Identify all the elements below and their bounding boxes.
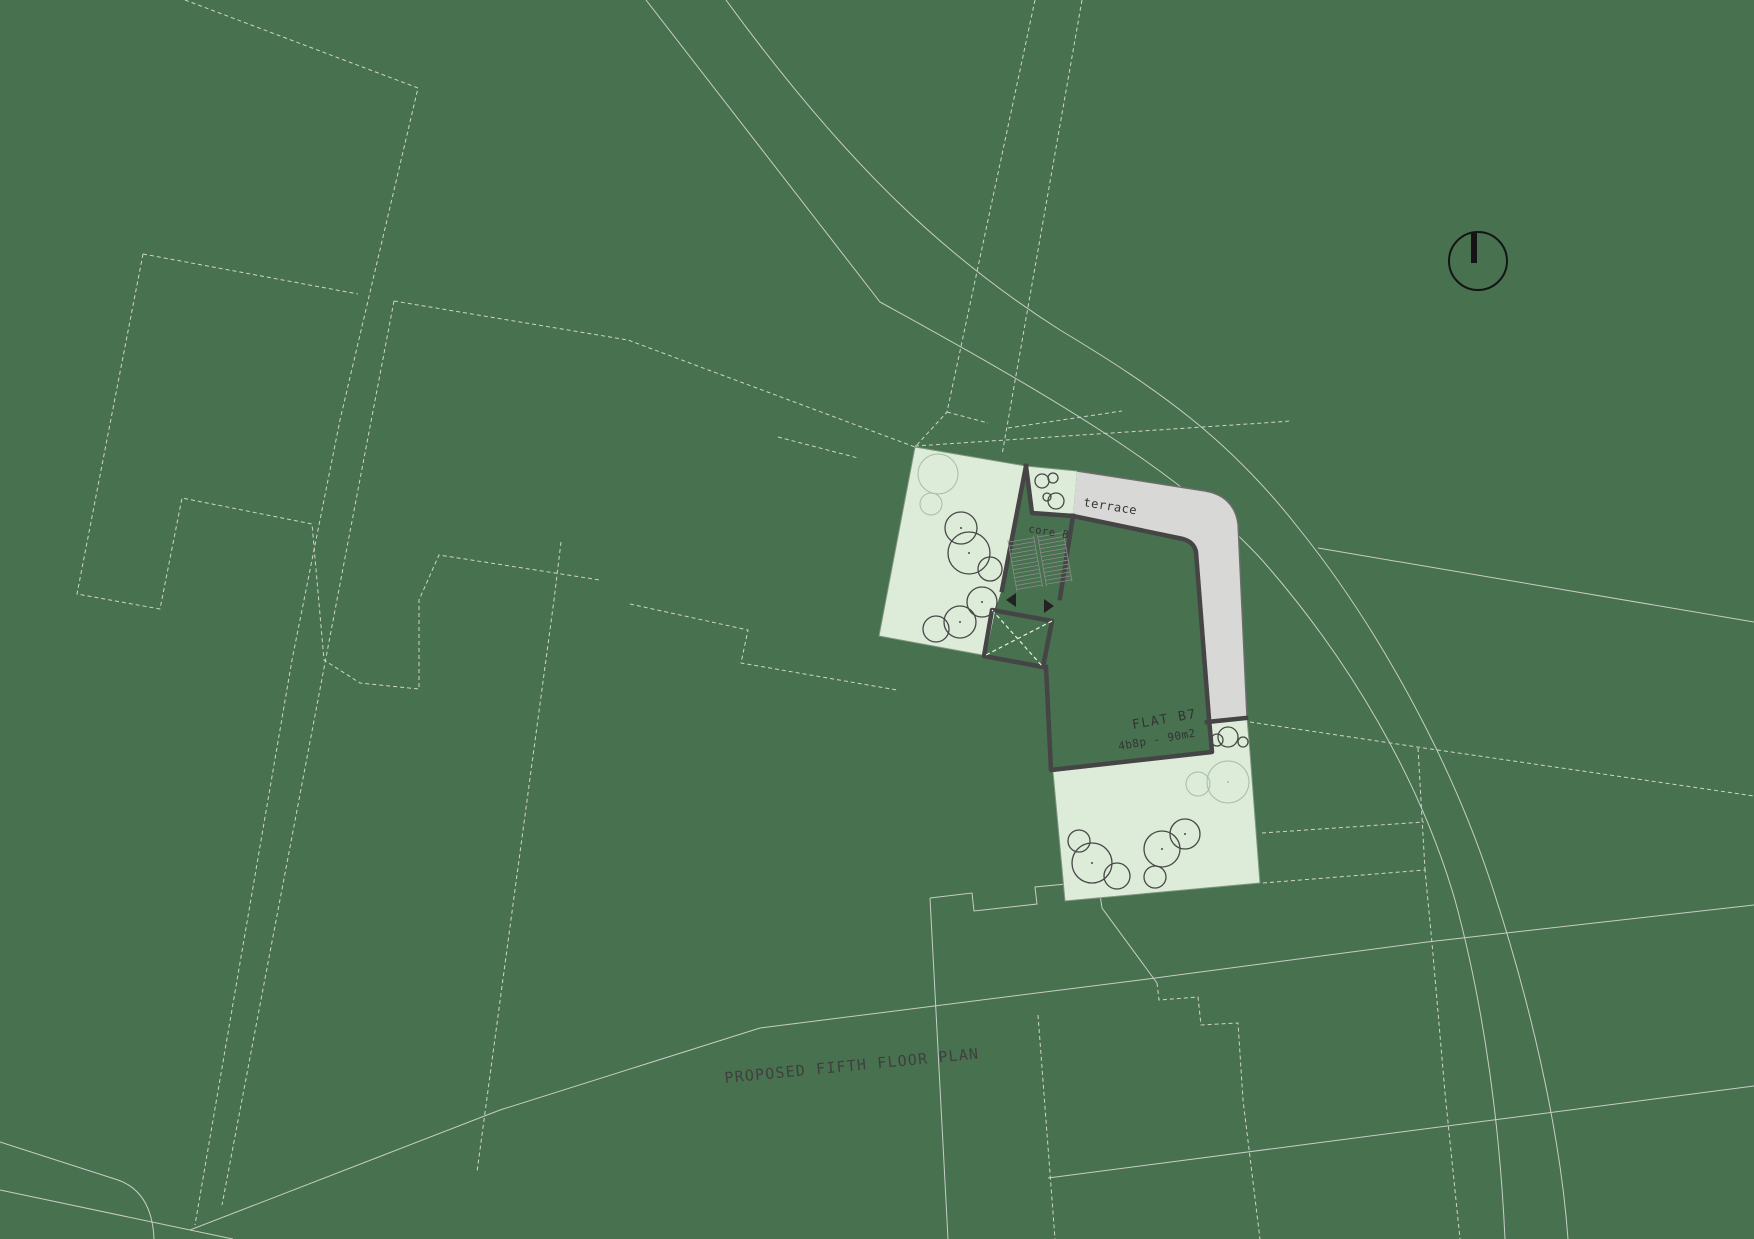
- door-swing-arrows: [1006, 593, 1054, 613]
- flat-area-label: 4b8p - 90m2: [1117, 727, 1196, 753]
- north-arrow-icon: [1449, 232, 1507, 290]
- plan-title: PROPOSED FIFTH FLOOR PLAN: [724, 1045, 980, 1087]
- road-lines: [0, 0, 1754, 1239]
- elevator-shaft: [984, 610, 1052, 667]
- floor-plan-canvas: terrace core B FLAT B7 4b8p - 90m2 PROPO…: [0, 0, 1754, 1239]
